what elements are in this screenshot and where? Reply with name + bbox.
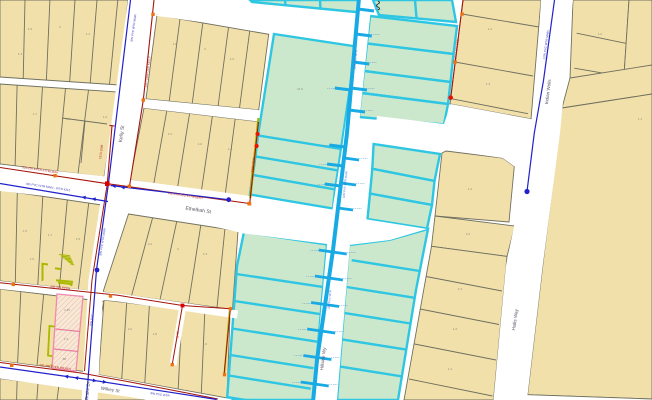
svg-text:1.3: 1.3 [458, 287, 463, 291]
svg-text:1.2: 1.2 [230, 57, 235, 61]
svg-text:1.2 4567: 1.2 4567 [368, 62, 378, 64]
svg-text:11-19: 11-19 [175, 331, 180, 339]
svg-text:1.3: 1.3 [64, 337, 69, 341]
svg-text:1.2 4567: 1.2 4567 [302, 303, 312, 305]
svg-text:1.5: 1.5 [28, 27, 33, 31]
svg-text:1.2 4567: 1.2 4567 [343, 278, 353, 280]
svg-text:1.6: 1.6 [203, 342, 208, 346]
svg-text:1.2 4567: 1.2 4567 [335, 331, 345, 333]
svg-text:1.2 4567: 1.2 4567 [298, 329, 308, 331]
svg-text:1.2: 1.2 [488, 27, 493, 31]
svg-text:1.1: 1.1 [448, 367, 453, 371]
svg-text:1.2 4567: 1.2 4567 [317, 184, 327, 186]
svg-text:1.2 4567: 1.2 4567 [371, 34, 381, 36]
svg-text:1.5: 1.5 [66, 117, 71, 121]
svg-text:1.8: 1.8 [173, 42, 178, 46]
svg-text:1.2 4567: 1.2 4567 [353, 208, 363, 210]
svg-text:1.8: 1.8 [153, 332, 158, 336]
svg-text:1.2 4567: 1.2 4567 [331, 357, 341, 359]
svg-text:1.2 4567: 1.2 4567 [329, 384, 339, 386]
svg-text:1.3: 1.3 [18, 52, 23, 56]
svg-text:1.4: 1.4 [486, 82, 491, 86]
svg-text:1.2 4567: 1.2 4567 [339, 305, 349, 307]
svg-text:1.6: 1.6 [198, 142, 203, 146]
svg-text:1.2 4567: 1.2 4567 [306, 276, 316, 278]
svg-text:1.1: 1.1 [86, 32, 91, 36]
svg-text:.88: .88 [62, 357, 67, 361]
svg-text:1.2 4567: 1.2 4567 [347, 252, 357, 254]
svg-text:1.2 4567: 1.2 4567 [373, 9, 383, 11]
svg-text:1.35: 1.35 [64, 308, 70, 312]
svg-text:1.2 4567: 1.2 4567 [359, 158, 369, 160]
svg-text:1.2 4567: 1.2 4567 [356, 183, 366, 185]
svg-text:1.5: 1.5 [76, 237, 81, 241]
svg-text:2.2: 2.2 [128, 327, 133, 331]
svg-text:1.2 4567: 1.2 4567 [310, 250, 320, 252]
svg-text:1.2 4567: 1.2 4567 [294, 355, 304, 357]
svg-text:1.5: 1.5 [23, 229, 28, 233]
svg-text:1.7: 1.7 [33, 112, 38, 116]
svg-text:1.2 4567: 1.2 4567 [327, 88, 337, 90]
svg-text:2.1: 2.1 [168, 132, 173, 136]
svg-text:21.5: 21.5 [297, 87, 303, 91]
svg-text:1.2 4567: 1.2 4567 [319, 164, 329, 166]
svg-text:1.2 4567: 1.2 4567 [292, 382, 302, 384]
svg-text:1.3: 1.3 [203, 252, 208, 256]
svg-text:1.4: 1.4 [228, 147, 233, 151]
svg-text:1.2 4567: 1.2 4567 [321, 145, 331, 147]
svg-text:1.7: 1.7 [48, 233, 53, 237]
svg-text:1.2: 1.2 [453, 327, 458, 331]
svg-text:1.4: 1.4 [103, 115, 108, 119]
svg-text:1.9: 1.9 [30, 257, 35, 261]
svg-text:1.2: 1.2 [598, 32, 603, 36]
svg-text:2.4: 2.4 [148, 242, 153, 246]
svg-text:1.6: 1.6 [466, 232, 471, 236]
svg-text:1.2 4567: 1.2 4567 [366, 88, 376, 90]
svg-text:1.1: 1.1 [638, 117, 643, 121]
svg-text:1.2: 1.2 [468, 187, 473, 191]
svg-text:1.2 4567: 1.2 4567 [364, 110, 374, 112]
